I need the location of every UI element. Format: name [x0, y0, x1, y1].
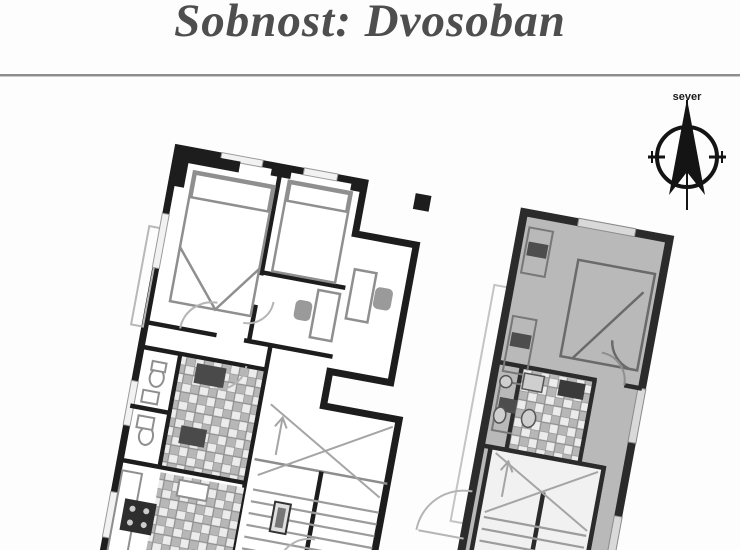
compass-rose-icon: [648, 99, 726, 210]
highlighted-unit-plan: [390, 199, 674, 550]
left-building-plan: [78, 142, 441, 550]
buildings: [77, 142, 674, 550]
column-block: [413, 193, 432, 212]
floor-plan-image: sever: [0, 0, 740, 550]
compass: sever: [648, 91, 726, 210]
